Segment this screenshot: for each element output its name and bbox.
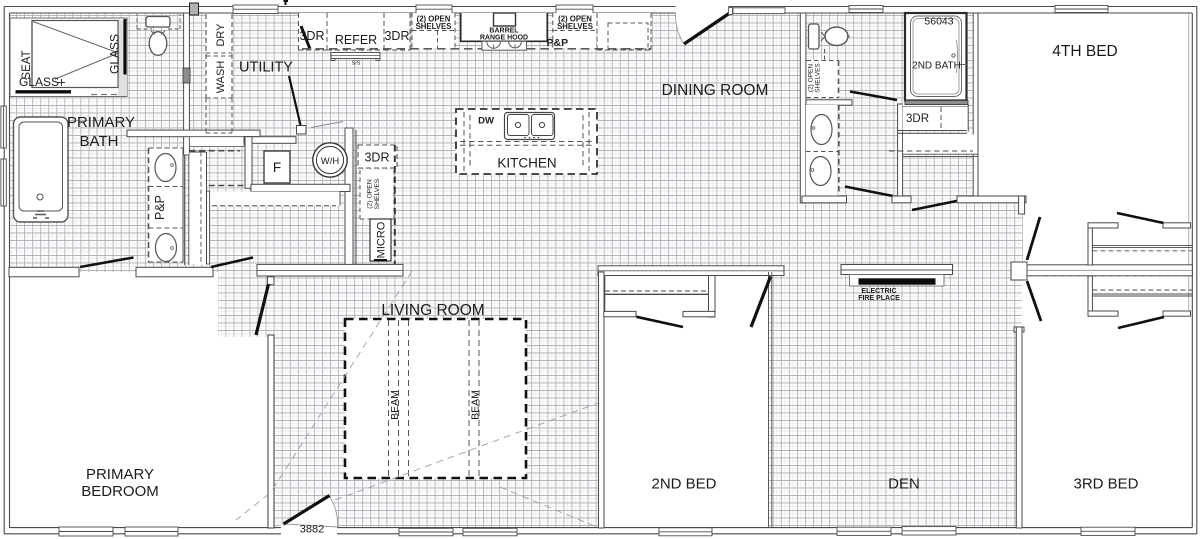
- svg-text:PRIMARY: PRIMARY: [86, 466, 154, 483]
- svg-text:W/H: W/H: [321, 156, 340, 167]
- svg-text:P&P: P&P: [547, 37, 569, 49]
- svg-text:4TH BED: 4TH BED: [1052, 43, 1117, 60]
- svg-text:FIRE PLACE: FIRE PLACE: [858, 295, 900, 302]
- svg-text:BEAM: BEAM: [470, 390, 482, 420]
- svg-text:BATH: BATH: [80, 133, 119, 150]
- svg-text:DW: DW: [478, 116, 494, 127]
- svg-text:LIVING ROOM: LIVING ROOM: [381, 302, 484, 319]
- svg-text:3882: 3882: [300, 524, 324, 536]
- svg-text:RANGE HOOD: RANGE HOOD: [480, 35, 528, 42]
- svg-text:SHELVES: SHELVES: [374, 178, 381, 209]
- svg-text:MICRO: MICRO: [376, 221, 388, 258]
- svg-text:GLASS: GLASS: [19, 75, 59, 89]
- svg-text:UTILITY: UTILITY: [239, 60, 293, 76]
- svg-text:56043: 56043: [924, 16, 953, 28]
- svg-text:3DR: 3DR: [364, 151, 389, 165]
- svg-text:(2) OPEN: (2) OPEN: [367, 179, 374, 209]
- svg-text:2ND BATH: 2ND BATH: [912, 61, 961, 72]
- svg-text:DRY: DRY: [215, 23, 227, 47]
- svg-text:2ND BED: 2ND BED: [651, 476, 716, 493]
- svg-text:DEN: DEN: [888, 476, 920, 493]
- svg-text:ELECTRIC: ELECTRIC: [862, 288, 897, 295]
- svg-text:3RD BED: 3RD BED: [1073, 476, 1138, 493]
- svg-text:BEAM: BEAM: [389, 390, 401, 420]
- svg-text:DINING ROOM: DINING ROOM: [662, 82, 769, 99]
- svg-text:SHELVES: SHELVES: [557, 22, 593, 31]
- svg-text:SHELVES: SHELVES: [815, 63, 822, 93]
- svg-text:REFER: REFER: [335, 33, 377, 47]
- svg-text:3DR: 3DR: [384, 29, 409, 43]
- svg-text:WASH: WASH: [215, 61, 227, 94]
- svg-text:BEDROOM: BEDROOM: [81, 483, 159, 500]
- svg-text:PRIMARY: PRIMARY: [67, 114, 135, 131]
- svg-text:P&P: P&P: [153, 195, 167, 220]
- svg-text:GLASS: GLASS: [108, 34, 122, 74]
- svg-text:3DR: 3DR: [906, 113, 929, 125]
- svg-text:F: F: [273, 160, 281, 175]
- svg-text:KITCHEN: KITCHEN: [497, 156, 556, 171]
- svg-text:(2) OPEN: (2) OPEN: [808, 64, 815, 92]
- svg-text:SHELVES: SHELVES: [416, 22, 452, 31]
- svg-text:BARREL: BARREL: [489, 28, 519, 35]
- svg-text:S/S: S/S: [352, 61, 361, 67]
